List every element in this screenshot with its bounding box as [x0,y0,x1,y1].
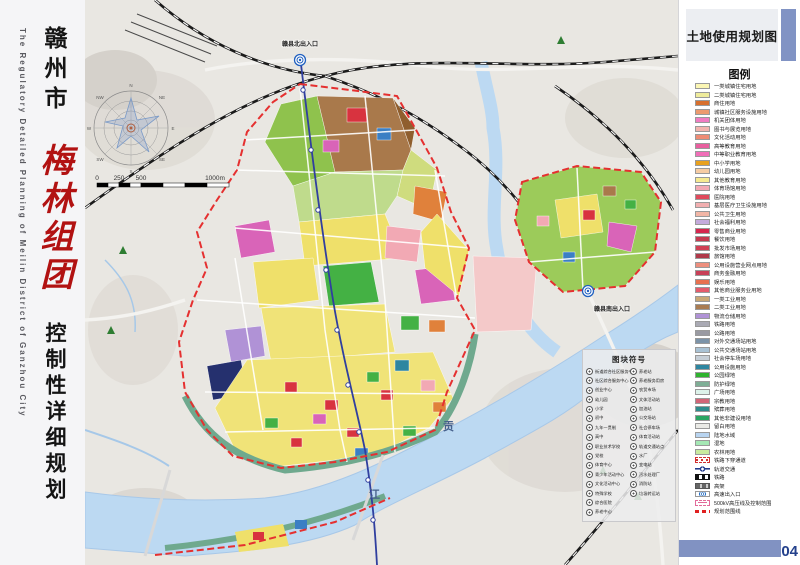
legend-color-swatch [695,296,710,302]
legend-row: 基层医疗卫生设施用地 [695,201,798,210]
river-label-jiang: 江 [369,487,380,501]
facility-icon [630,406,637,413]
legend-row: 中等职业教育用地 [695,150,798,159]
legend-row: 公用设施用地 [695,363,798,372]
facility-icon [630,415,637,422]
legend-row: 湿地 [695,439,798,448]
north-exit-label: 赣县北出入口 [282,40,318,48]
facility-label: 公交场站 [639,415,656,421]
facility-label: 消防站 [639,481,652,487]
legend-title-box: 土地使用规划图 [686,9,778,61]
legend-color-swatch [695,262,710,268]
legend-label: 公用设施营业网点用地 [714,261,767,269]
legend-label: 一类工业用地 [714,295,746,303]
facility-row: 养老站 [630,368,672,375]
facility-icon [630,434,637,441]
facility-icon [586,453,593,460]
legend-color-swatch [695,287,710,293]
legend-row: 商务金融用地 [695,269,798,278]
facility-label: 体育中心 [595,462,612,468]
title-sidebar: The Regulatory Detailed Planning of Meil… [0,0,86,565]
facility-label: 九年一贯制 [595,425,616,431]
legend-color-swatch [695,100,710,106]
legend-symbol-label: 500kV高压线及控制范围 [714,499,771,507]
facility-row: 加油站 [630,406,672,413]
legend-symbol-row: 规划范围线 [695,507,798,516]
legend-symbol-row: 轨道交通 [695,465,798,474]
legend-row: 广场用地 [695,388,798,397]
legend-symbol-row: 铁路下穿通道 [695,456,798,465]
legend-label: 二类城镇住宅用地 [714,91,756,99]
facility-row: 幼儿园 [586,396,628,403]
facility-row: 垃圾转运站 [630,490,672,497]
legend-row: 公共卫生用地 [695,210,798,219]
legend-row: 其他非建设用地 [695,414,798,423]
legend-color-swatch [695,185,710,191]
compass-sw: SW [96,157,104,162]
facility-icon [586,490,593,497]
legend-row: 体育场馆用地 [695,184,798,193]
legend-row: 文化活动用地 [695,133,798,142]
legend-color-swatch [695,364,710,370]
legend-color-swatch [695,270,710,276]
facility-icon [586,481,593,488]
legend-symbol-swatch [695,474,710,480]
legend-color-swatch [695,117,710,123]
facility-label: 文体活动站 [639,397,660,403]
facility-label: 污水处理厂 [639,472,660,478]
legend-color-swatch [695,245,710,251]
legend-label: 批发市场用地 [714,244,746,252]
facility-row: 青少年活动中心 [586,471,628,478]
facility-row: 初中 [586,415,628,422]
facility-column-left: 街道综合社区服务中心 社区综合服务中心 创业中心 幼儿园 [586,368,628,518]
legend-row: 社会福利用地 [695,218,798,227]
compass-e: E [171,126,174,131]
legend-color-swatch [695,423,710,429]
facility-label: 变电站 [639,462,652,468]
legend-symbol-swatch [695,457,710,463]
facility-label: 党校 [595,453,603,459]
legend-title: 土地使用规划图 [686,26,777,45]
legend-row: 医院用地 [695,193,798,202]
legend-symbol-label: 高架 [714,482,725,490]
facility-icon [586,368,593,375]
title-accent-bar [781,9,796,61]
legend-label: 社会停车场用地 [714,354,751,362]
facility-icon [630,471,637,478]
legend-color-swatch [695,313,710,319]
legend-label: 二类工业用地 [714,303,746,311]
facility-row: 文化活动中心 [586,481,628,488]
compass-n: N [129,83,132,88]
footer-bar [679,540,781,557]
legend-color-swatch [695,151,710,157]
legend-color-swatch [695,381,710,387]
legend-color-swatch [695,389,710,395]
city-name: 赣州市 [41,26,67,116]
legend-row: 幼儿园用地 [695,167,798,176]
map-canvas: 赣县北出入口 赣县南出入口 贡 江 N NE E SE S SW W NW 0 … [85,0,678,565]
scale-500: 500 [136,175,147,182]
facility-row: 公交场站 [630,415,672,422]
legend-label: 公路用地 [714,329,735,337]
legend-row: 机关团体用地 [695,116,798,125]
legend-label: 商住用地 [714,99,735,107]
facility-label: 小学 [595,406,603,412]
legend-label: 医院用地 [714,193,735,201]
legend-color-swatch [695,355,710,361]
facility-row: 变电站 [630,462,672,469]
legend-label: 殡葬用地 [714,405,735,413]
legend-label: 其他教育用地 [714,176,746,184]
legend-label: 机关团体用地 [714,116,746,124]
legend-color-swatch [695,177,710,183]
facility-label: 养老服务用房 [639,378,664,384]
legend-label: 广场用地 [714,388,735,396]
facility-icon [586,396,593,403]
legend-color-swatch [695,109,710,115]
facility-label: 青少年活动中心 [595,472,624,478]
facility-row: 水厂 [630,453,672,460]
legend-color-swatch [695,236,710,242]
facility-label: 轨道交通站点 [639,444,664,450]
legend-color-swatch [695,134,710,140]
facility-icon [586,509,593,516]
legend-color-swatch [695,398,710,404]
facility-label: 文化活动中心 [595,481,620,487]
legend-label: 公园绿地 [714,371,735,379]
chinese-title: 赣州市 梅林组团 控制性详细规划 [38,26,71,556]
legend-row: 殡葬用地 [695,405,798,414]
facility-icon [586,434,593,441]
legend-label: 高等教育用地 [714,142,746,150]
facility-row: 体育活动站 [630,434,672,441]
legend-row: 陆地水域 [695,431,798,440]
scale-0: 0 [95,175,99,182]
facility-icon [586,406,593,413]
facility-label: 农贸市场 [639,387,656,393]
legend-color-swatch [695,279,710,285]
legend-row: 防护绿地 [695,380,798,389]
legend-row: 铁路用地 [695,320,798,329]
legend-color-swatch [695,219,710,225]
legend-row: 高等教育用地 [695,142,798,151]
facility-row: 轨道交通站点 [630,443,672,450]
legend-symbol-label: 铁路 [714,473,725,481]
legend-row: 物流仓储用地 [695,312,798,321]
south-exit-label: 赣县南出入口 [594,305,630,313]
facility-icon [630,443,637,450]
legend-row: 农林用地 [695,448,798,457]
facility-label: 高中 [595,434,603,440]
facility-label: 职业技术学校 [595,444,620,450]
legend-color-swatch [695,160,710,166]
facility-label: 幼儿园 [595,397,608,403]
facility-row: 消防站 [630,481,672,488]
legend-symbol-row: 铁路 [695,473,798,482]
facility-icon [630,387,637,394]
facility-label: 水厂 [639,453,647,459]
facility-icon [630,481,637,488]
legend-label: 旅馆用地 [714,252,735,260]
facility-label: 加油站 [639,406,652,412]
facility-row: 九年一贯制 [586,424,628,431]
legend-label: 陆地水域 [714,431,735,439]
facility-label: 养老中心 [595,509,612,515]
legend-color-swatch [695,126,710,132]
scale-1000: 1000m [205,175,225,182]
legend-label: 商务金融用地 [714,269,746,277]
legend-color-swatch [695,347,710,353]
facility-label: 综合医院 [595,500,612,506]
legend-label: 基层医疗卫生设施用地 [714,201,767,209]
facility-label: 初中 [595,415,603,421]
legend-label: 幼儿园用地 [714,167,741,175]
compass-ne: NE [159,95,165,100]
page-number: 04 [781,543,798,560]
legend-label: 物流仓储用地 [714,312,746,320]
facility-icon [630,462,637,469]
legend-row: 其他教育用地 [695,176,798,185]
legend-label: 餐饮用地 [714,235,735,243]
legend-color-swatch [695,83,710,89]
facility-row: 污水处理厂 [630,471,672,478]
facility-row: 农贸市场 [630,387,672,394]
legend-symbol-label: 铁路下穿通道 [714,456,746,464]
legend-label: 公用设施用地 [714,363,746,371]
facility-row: 创业中心 [586,387,628,394]
facility-icon [586,499,593,506]
legend-row: 图书与展览用地 [695,125,798,134]
legend-symbol-swatch [695,483,710,489]
legend-row: 宗教用地 [695,397,798,406]
facility-column-right: 养老站 养老服务用房 农贸市场 文体活动站 [630,368,672,518]
legend-symbol-swatch [695,466,710,472]
legend-label: 留白用地 [714,422,735,430]
facility-label: 垃圾转运站 [639,491,660,497]
legend-color-swatch [695,168,710,174]
legend-row: 餐饮用地 [695,235,798,244]
facility-row: 体育中心 [586,462,628,469]
legend-color-swatch [695,338,710,344]
legend-row: 城镇社区服务设施用地 [695,108,798,117]
facility-icon [586,424,593,431]
facility-label: 社区综合服务中心 [595,378,629,384]
legend-row: 旅馆用地 [695,252,798,261]
legend-row: 中小学用地 [695,159,798,168]
legend-color-swatch [695,228,710,234]
facility-row: 特殊学校 [586,490,628,497]
legend-symbol-list: 铁路下穿通道 轨道交通 铁路 高架 [695,456,798,516]
legend-row: 一类工业用地 [695,295,798,304]
facility-row: 党校 [586,453,628,460]
legend-color-swatch [695,321,710,327]
expressway-exit-south [583,286,594,297]
legend-row: 社会停车场用地 [695,354,798,363]
legend-row: 对外交通场站用地 [695,337,798,346]
legend-label: 社会福利用地 [714,218,746,226]
legend-symbol-label: 高速出入口 [714,490,741,498]
legend-label: 农林用地 [714,448,735,456]
legend-label: 图书与展览用地 [714,125,751,133]
legend-label: 对外交通场站用地 [714,337,756,345]
legend-row: 零售商业用地 [695,227,798,236]
legend-row: 留白用地 [695,422,798,431]
legend-color-swatch [695,194,710,200]
legend-label: 防护绿地 [714,380,735,388]
facility-row: 社会停车场 [630,424,672,431]
legend-label: 其他非建设用地 [714,414,751,422]
facility-row: 高中 [586,434,628,441]
legend-panel: 土地使用规划图 图例 一类城镇住宅用地 二类城镇住宅用地 商住用地 [678,0,800,565]
facility-row: 职业技术学校 [586,443,628,450]
facility-icon [586,443,593,450]
legend-color-swatch [695,253,710,259]
legend-row: 商住用地 [695,99,798,108]
legend-color-swatch [695,449,710,455]
legend-label: 公共交通场站用地 [714,346,756,354]
facility-icon [586,415,593,422]
scale-250: 250 [114,175,125,182]
facility-label: 创业中心 [595,387,612,393]
legend-color-list: 一类城镇住宅用地 二类城镇住宅用地 商住用地 城镇社区服务设施用地 [695,82,798,456]
facility-icon [630,490,637,497]
legend-label: 湿地 [714,439,725,447]
legend-symbol-label: 规划范围线 [714,507,741,515]
river-label-gong: 贡 [443,420,454,433]
legend-label: 文化活动用地 [714,133,746,141]
facility-row: 文体活动站 [630,396,672,403]
legend-row: 公路用地 [695,329,798,338]
legend-symbol-row: 500kV高压线及控制范围 [695,499,798,508]
legend-symbol-row: 高架 [695,482,798,491]
compass-se: SE [159,157,165,162]
legend-row: 二类城镇住宅用地 [695,91,798,100]
legend-symbol-swatch [695,491,710,497]
expressway-exit-north [295,55,306,66]
legend-label: 铁路用地 [714,320,735,328]
legend-row: 一类城镇住宅用地 [695,82,798,91]
facility-icon [630,424,637,431]
facility-icon [586,471,593,478]
facility-icon [630,377,637,384]
facility-label: 养老站 [639,369,652,375]
english-title: The Regulatory Detailed Planning of Meil… [18,28,27,548]
compass-s: S [129,169,132,174]
legend-color-swatch [695,202,710,208]
legend-row: 二类工业用地 [695,303,798,312]
legend-color-swatch [695,372,710,378]
facility-icon [586,462,593,469]
legend-label: 其他商业服务业用地 [714,286,762,294]
legend-label: 一类城镇住宅用地 [714,82,756,90]
plan-type: 控制性详细规划 [43,322,66,504]
compass-nw: NW [96,95,104,100]
legend-row: 批发市场用地 [695,244,798,253]
legend-color-swatch [695,415,710,421]
legend-color-swatch [695,432,710,438]
legend-label: 中小学用地 [714,159,741,167]
facility-row: 综合医院 [586,499,628,506]
legend-symbol-row: 高速出入口 [695,490,798,499]
legend-color-swatch [695,406,710,412]
legend-label: 零售商业用地 [714,227,746,235]
legend-row: 公园绿地 [695,371,798,380]
legend-label: 宗教用地 [714,397,735,405]
legend-row: 其他商业服务业用地 [695,286,798,295]
facility-row: 养老中心 [586,509,628,516]
facility-row: 街道综合社区服务中心 [586,368,628,375]
legend-symbol-swatch [695,510,710,513]
legend-rows: 一类城镇住宅用地 二类城镇住宅用地 商住用地 城镇社区服务设施用地 [695,82,798,516]
legend-label: 中等职业教育用地 [714,150,756,158]
legend-label: 娱乐用地 [714,278,735,286]
legend-color-swatch [695,440,710,446]
legend-heading: 图例 [679,66,800,82]
legend-color-swatch [695,92,710,98]
legend-color-swatch [695,304,710,310]
facility-row: 养老服务用房 [630,377,672,384]
facility-icon [630,396,637,403]
legend-color-swatch [695,330,710,336]
facility-label: 社会停车场 [639,425,660,431]
facility-row: 小学 [586,406,628,413]
planning-sheet: { "sidebar": { "city": "赣州市", "district"… [0,0,800,565]
facility-symbols-panel: 图块符号 街道综合社区服务中心 社区综合服务中心 [582,349,676,522]
facility-label: 体育活动站 [639,434,660,440]
facility-icon [630,453,637,460]
facility-label: 特殊学校 [595,491,612,497]
facility-icon [586,387,593,394]
facility-panel-title: 图块符号 [586,354,672,365]
facility-row: 社区综合服务中心 [586,377,628,384]
legend-label: 体育场馆用地 [714,184,746,192]
legend-row: 公共交通场站用地 [695,346,798,355]
legend-label: 公共卫生用地 [714,210,746,218]
legend-row: 娱乐用地 [695,278,798,287]
legend-symbol-swatch [695,500,710,506]
legend-color-swatch [695,143,710,149]
facility-icon [586,377,593,384]
legend-label: 城镇社区服务设施用地 [714,108,767,116]
legend-symbol-label: 轨道交通 [714,465,735,473]
legend-row: 公用设施营业网点用地 [695,261,798,270]
facility-icon [630,368,637,375]
legend-color-swatch [695,211,710,217]
district-name: 梅林组团 [35,143,74,295]
